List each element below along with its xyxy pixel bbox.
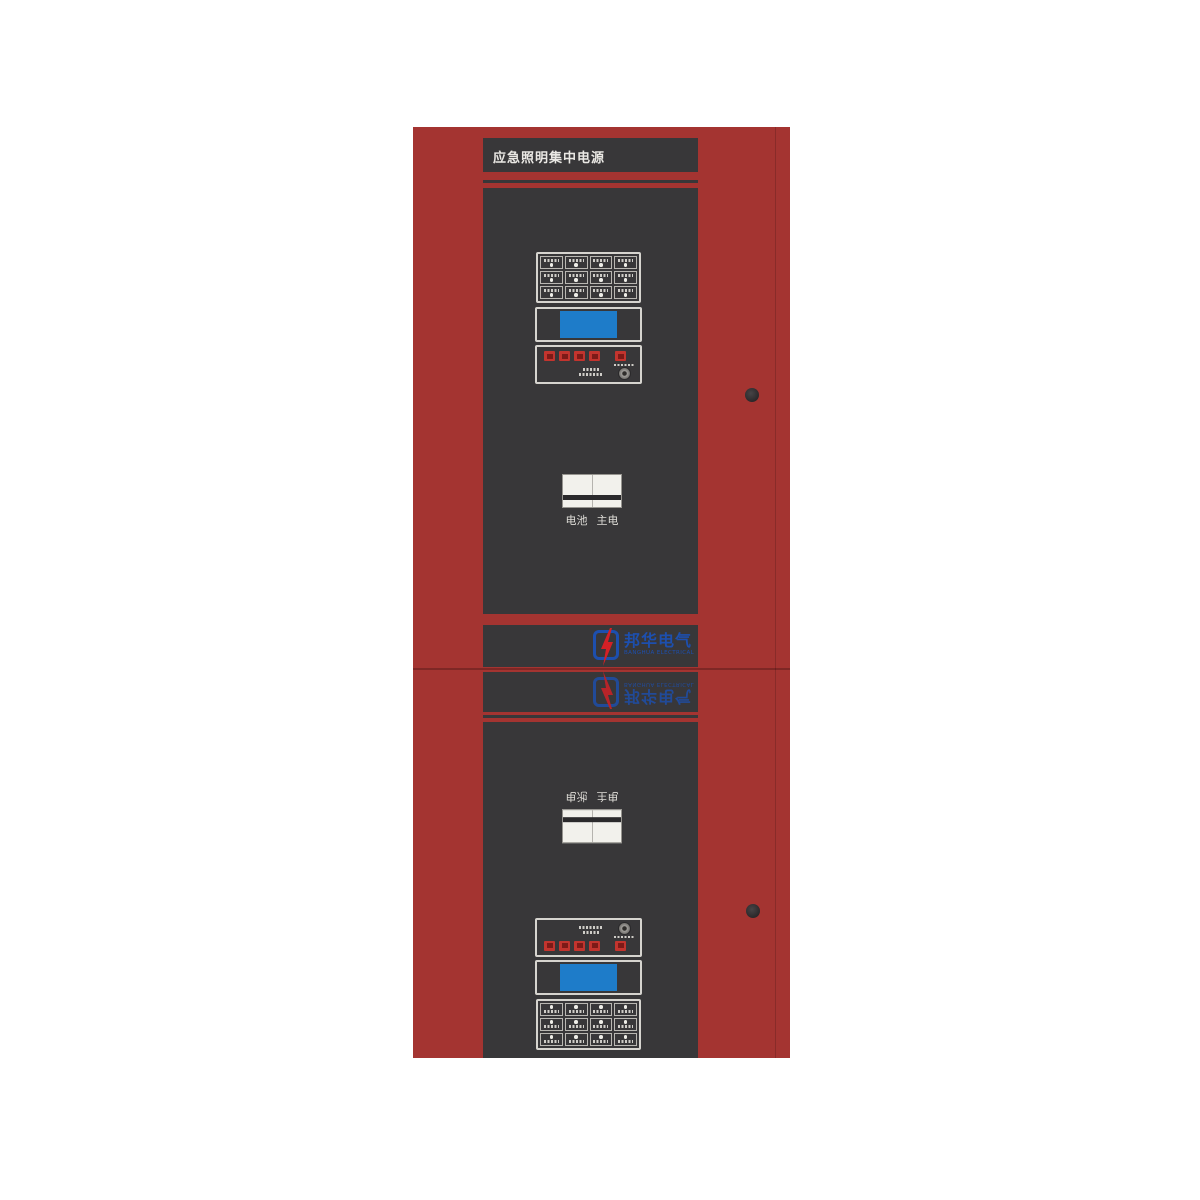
indicator-led <box>624 1006 628 1010</box>
indicator-led <box>624 263 628 267</box>
indicator-cell <box>590 1003 613 1016</box>
control-assembly-upper <box>535 252 642 384</box>
indicator-label-marks <box>569 1011 584 1014</box>
lcd-screen <box>560 964 617 991</box>
indicator-label-marks <box>618 1011 633 1014</box>
indicator-label-marks <box>569 259 584 262</box>
indicator-label-marks <box>544 1011 559 1014</box>
indicator-panel <box>536 252 641 303</box>
breaker-labels: 电池 主电 <box>562 514 622 527</box>
indicator-led <box>550 1021 554 1025</box>
indicator-cell <box>540 1033 563 1046</box>
function-button[interactable] <box>574 351 585 361</box>
lcd-display-panel <box>535 960 642 995</box>
indicator-label-marks <box>593 1026 608 1029</box>
button-panel <box>535 918 642 957</box>
screw <box>746 904 760 918</box>
panel-text-marks <box>579 926 603 929</box>
indicator-cell <box>540 256 563 269</box>
function-button[interactable] <box>589 351 600 361</box>
breaker-block-upper: 电池 主电 <box>562 474 622 527</box>
indicator-label-marks <box>593 289 608 292</box>
indicator-cell <box>565 1003 588 1016</box>
lcd-display-panel <box>535 307 642 342</box>
indicator-led <box>599 1036 603 1040</box>
function-button[interactable] <box>544 351 555 361</box>
indicator-label-marks <box>593 259 608 262</box>
indicator-led <box>624 1021 628 1025</box>
indicator-led <box>550 263 554 267</box>
key-switch-label-marks <box>614 364 635 366</box>
trim-line-top <box>483 180 698 183</box>
indicator-led <box>574 278 578 282</box>
indicator-led <box>599 278 603 282</box>
indicator-label-marks <box>593 274 608 277</box>
breaker-block-lower: 电池 主电 <box>562 790 622 843</box>
indicator-cell <box>565 256 588 269</box>
brand-name-cn: 邦华电气 <box>624 633 694 649</box>
indicator-cell <box>540 1003 563 1016</box>
indicator-led <box>574 1021 578 1025</box>
lcd-screen <box>560 311 617 338</box>
device-title: 应急照明集中电源 <box>483 147 605 172</box>
indicator-led <box>599 1006 603 1010</box>
function-button-right[interactable] <box>615 351 626 361</box>
indicator-label-marks <box>544 1041 559 1044</box>
indicator-cell <box>590 1033 613 1046</box>
indicator-label-marks <box>618 289 633 292</box>
indicator-led <box>550 278 554 282</box>
indicator-label-marks <box>618 1041 633 1044</box>
trim-line-bottom <box>483 715 698 718</box>
lower-door-panel: 电池 主电 <box>483 722 698 1058</box>
cabinet-edge-seam <box>775 127 776 1058</box>
brand-logo: 邦华电气 BANGHUA ELECTRICAL <box>593 630 694 660</box>
breaker-label-battery: 电池 <box>566 514 588 527</box>
logo-band: 邦华电气 BANGHUA ELECTRICAL <box>483 625 698 667</box>
key-switch[interactable] <box>618 367 631 380</box>
indicator-led <box>550 293 554 297</box>
breaker-labels: 电池 主电 <box>562 790 622 803</box>
indicator-led <box>574 1006 578 1010</box>
indicator-cell <box>540 1018 563 1031</box>
indicator-led <box>624 278 628 282</box>
upper-door-panel: 电池 主电 <box>483 188 698 614</box>
indicator-panel <box>536 999 641 1050</box>
indicator-led <box>550 1006 554 1010</box>
indicator-led <box>599 293 603 297</box>
indicator-cell <box>614 256 637 269</box>
indicator-label-marks <box>544 259 559 262</box>
indicator-cell <box>614 1033 637 1046</box>
indicator-cell <box>565 1033 588 1046</box>
function-button-group <box>544 351 600 361</box>
breaker-divider <box>592 810 593 842</box>
indicator-led <box>599 1021 603 1025</box>
indicator-label-marks <box>618 1026 633 1029</box>
breaker-divider <box>592 475 593 507</box>
indicator-label-marks <box>544 1026 559 1029</box>
function-button[interactable] <box>574 941 585 951</box>
key-switch[interactable] <box>618 922 631 935</box>
indicator-cell <box>614 286 637 299</box>
indicator-label-marks <box>544 274 559 277</box>
indicator-label-marks <box>569 274 584 277</box>
indicator-cell <box>565 271 588 284</box>
indicator-label-marks <box>569 289 584 292</box>
brand-name-cn: 邦华电气 <box>624 688 694 704</box>
key-switch-label-marks <box>614 936 635 938</box>
indicator-cell <box>540 286 563 299</box>
logo-band-reflection: 邦华电气 BANGHUA ELECTRICAL <box>483 672 698 712</box>
indicator-label-marks <box>569 1041 584 1044</box>
title-band: 应急照明集中电源 <box>483 138 698 172</box>
page-background: 应急照明集中电源 电池 主电 邦华电气 BANGHUA ELECTRI <box>0 0 1200 1200</box>
indicator-led <box>574 293 578 297</box>
indicator-cell <box>590 256 613 269</box>
indicator-led <box>624 1036 628 1040</box>
panel-text-marks <box>583 368 599 371</box>
indicator-label-marks <box>544 289 559 292</box>
indicator-cell <box>590 286 613 299</box>
indicator-cell <box>614 1003 637 1016</box>
indicator-cell <box>540 271 563 284</box>
control-assembly-lower <box>535 918 642 1050</box>
breaker-rocker <box>563 817 621 822</box>
screw <box>745 388 759 402</box>
button-panel <box>535 345 642 384</box>
function-button[interactable] <box>559 941 570 951</box>
power-cabinet: 应急照明集中电源 电池 主电 邦华电气 BANGHUA ELECTRI <box>413 127 790 1058</box>
brand-text: 邦华电气 BANGHUA ELECTRICAL <box>624 680 694 704</box>
lightning-bolt-icon <box>593 630 619 660</box>
indicator-cell <box>565 286 588 299</box>
breaker-switch[interactable] <box>562 809 622 843</box>
brand-text: 邦华电气 BANGHUA ELECTRICAL <box>624 633 694 657</box>
lightning-bolt-icon <box>593 677 619 707</box>
indicator-cell <box>590 1018 613 1031</box>
indicator-label-marks <box>618 274 633 277</box>
brand-logo-reflection: 邦华电气 BANGHUA ELECTRICAL <box>593 677 694 707</box>
indicator-led <box>599 263 603 267</box>
function-button[interactable] <box>589 941 600 951</box>
breaker-rocker <box>563 495 621 500</box>
indicator-cell <box>565 1018 588 1031</box>
indicator-led <box>550 1036 554 1040</box>
brand-name-en: BANGHUA ELECTRICAL <box>624 651 694 657</box>
panel-text-marks <box>583 931 599 934</box>
indicator-label-marks <box>593 1011 608 1014</box>
cabinet-seam <box>413 668 790 670</box>
indicator-cell <box>614 271 637 284</box>
brand-name-en: BANGHUA ELECTRICAL <box>624 680 694 686</box>
function-button-right[interactable] <box>615 941 626 951</box>
indicator-led <box>574 263 578 267</box>
indicator-label-marks <box>569 1026 584 1029</box>
function-button-group <box>544 941 600 951</box>
indicator-cell <box>614 1018 637 1031</box>
breaker-switch[interactable] <box>562 474 622 508</box>
breaker-label-mains: 主电 <box>597 514 619 527</box>
indicator-label-marks <box>593 1041 608 1044</box>
function-button[interactable] <box>544 941 555 951</box>
indicator-cell <box>590 271 613 284</box>
breaker-label-battery: 电池 <box>566 790 588 803</box>
indicator-label-marks <box>618 259 633 262</box>
breaker-label-mains: 主电 <box>597 790 619 803</box>
panel-text-marks <box>579 373 603 376</box>
function-button[interactable] <box>559 351 570 361</box>
indicator-led <box>574 1036 578 1040</box>
indicator-led <box>624 293 628 297</box>
